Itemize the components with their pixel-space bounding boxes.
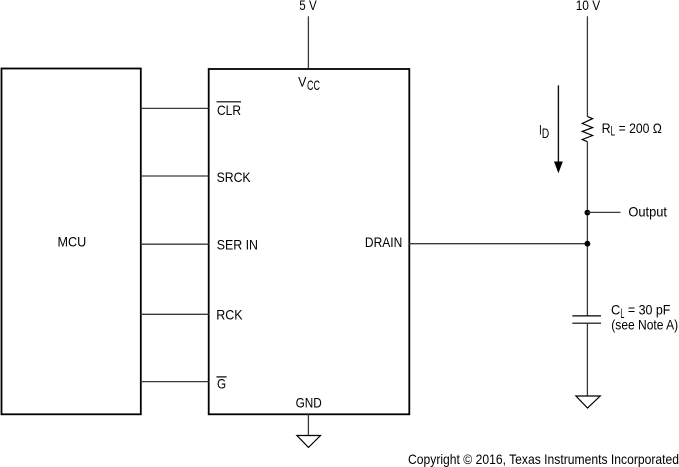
svg-text:10 V: 10 V — [576, 0, 601, 13]
svg-text:Output: Output — [628, 204, 667, 220]
svg-text:Copyright © 2016, Texas Instru: Copyright © 2016, Texas Instruments Inco… — [408, 451, 679, 467]
svg-text:5 V: 5 V — [299, 0, 317, 13]
svg-text:SRCK: SRCK — [217, 169, 252, 185]
svg-text:GND: GND — [296, 395, 322, 411]
svg-text:SER IN: SER IN — [217, 237, 258, 253]
svg-text:D: D — [542, 125, 550, 141]
svg-text:R: R — [602, 120, 611, 136]
svg-text:C: C — [611, 302, 620, 318]
svg-text:G: G — [217, 376, 226, 392]
svg-text:CC: CC — [307, 77, 320, 93]
svg-text:L: L — [611, 123, 616, 139]
svg-text:DRAIN: DRAIN — [365, 234, 402, 250]
svg-text:V: V — [298, 73, 307, 89]
svg-text:= 200 Ω: = 200 Ω — [619, 120, 662, 136]
svg-text:MCU: MCU — [58, 234, 87, 250]
svg-text:(see Note A): (see Note A) — [611, 316, 678, 332]
svg-text:CLR: CLR — [217, 102, 241, 118]
svg-text:= 30 pF: = 30 pF — [628, 302, 671, 318]
svg-text:RCK: RCK — [216, 307, 243, 323]
